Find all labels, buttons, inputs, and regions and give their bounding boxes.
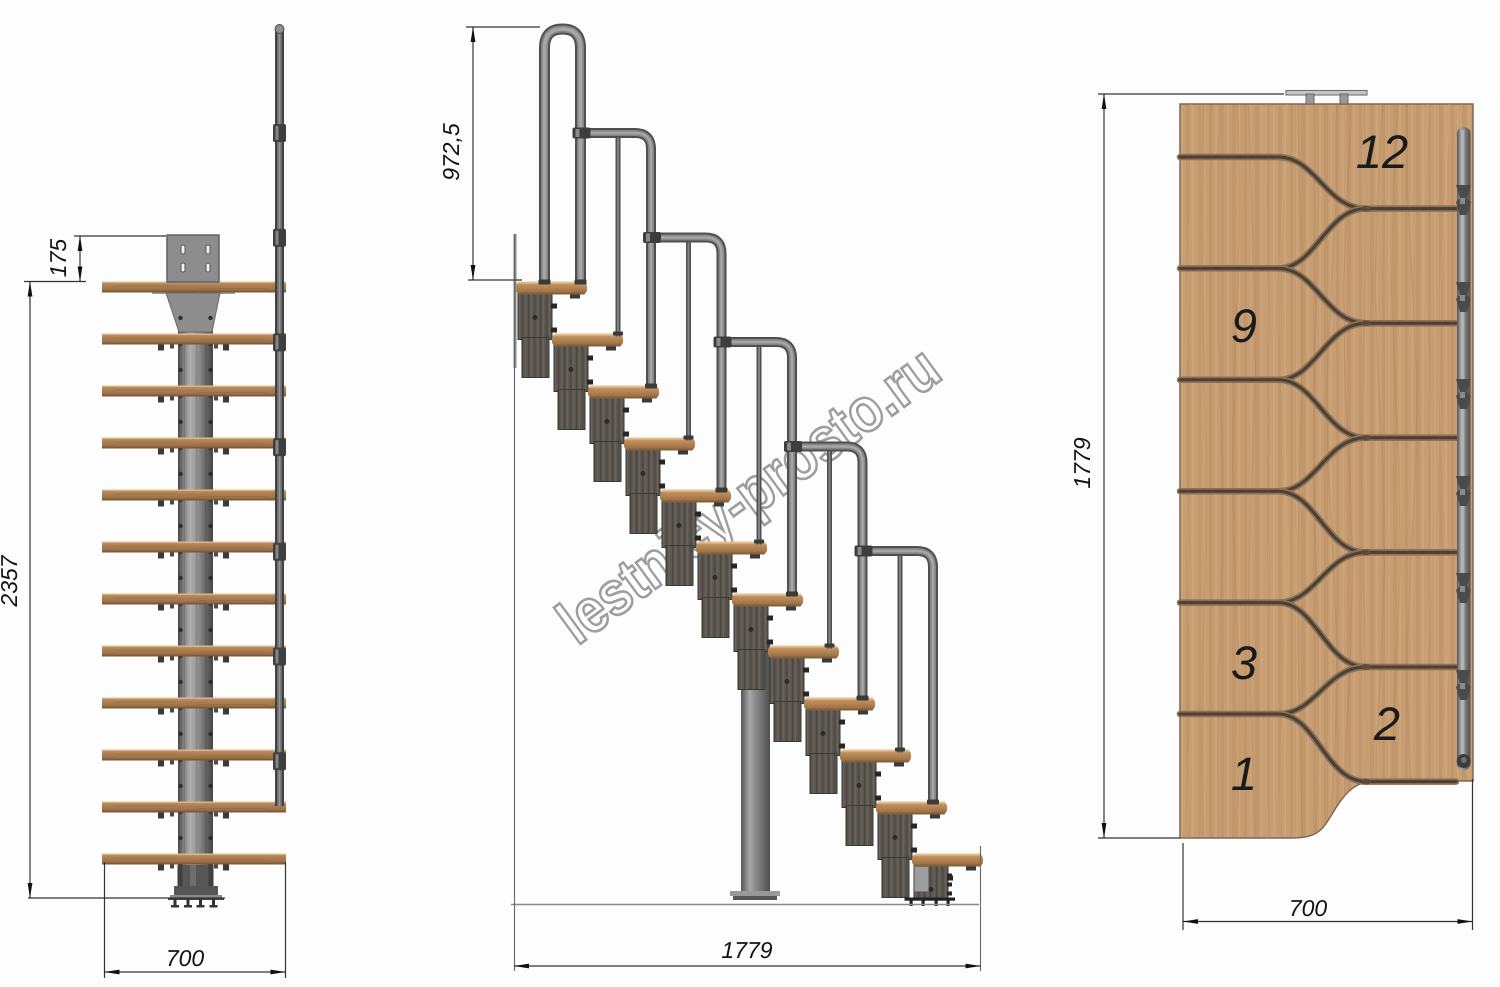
svg-text:1779: 1779 (1069, 437, 1095, 488)
svg-text:1779: 1779 (721, 937, 772, 963)
svg-text:9: 9 (1231, 299, 1257, 352)
svg-text:12: 12 (1356, 125, 1408, 178)
svg-text:700: 700 (166, 945, 205, 971)
svg-text:1: 1 (1231, 747, 1257, 800)
svg-text:700: 700 (1289, 895, 1328, 921)
svg-text:3: 3 (1231, 636, 1257, 689)
svg-text:2357: 2357 (0, 554, 22, 607)
svg-text:972,5: 972,5 (438, 123, 464, 181)
svg-text:175: 175 (45, 239, 71, 278)
svg-text:2: 2 (1373, 697, 1400, 750)
